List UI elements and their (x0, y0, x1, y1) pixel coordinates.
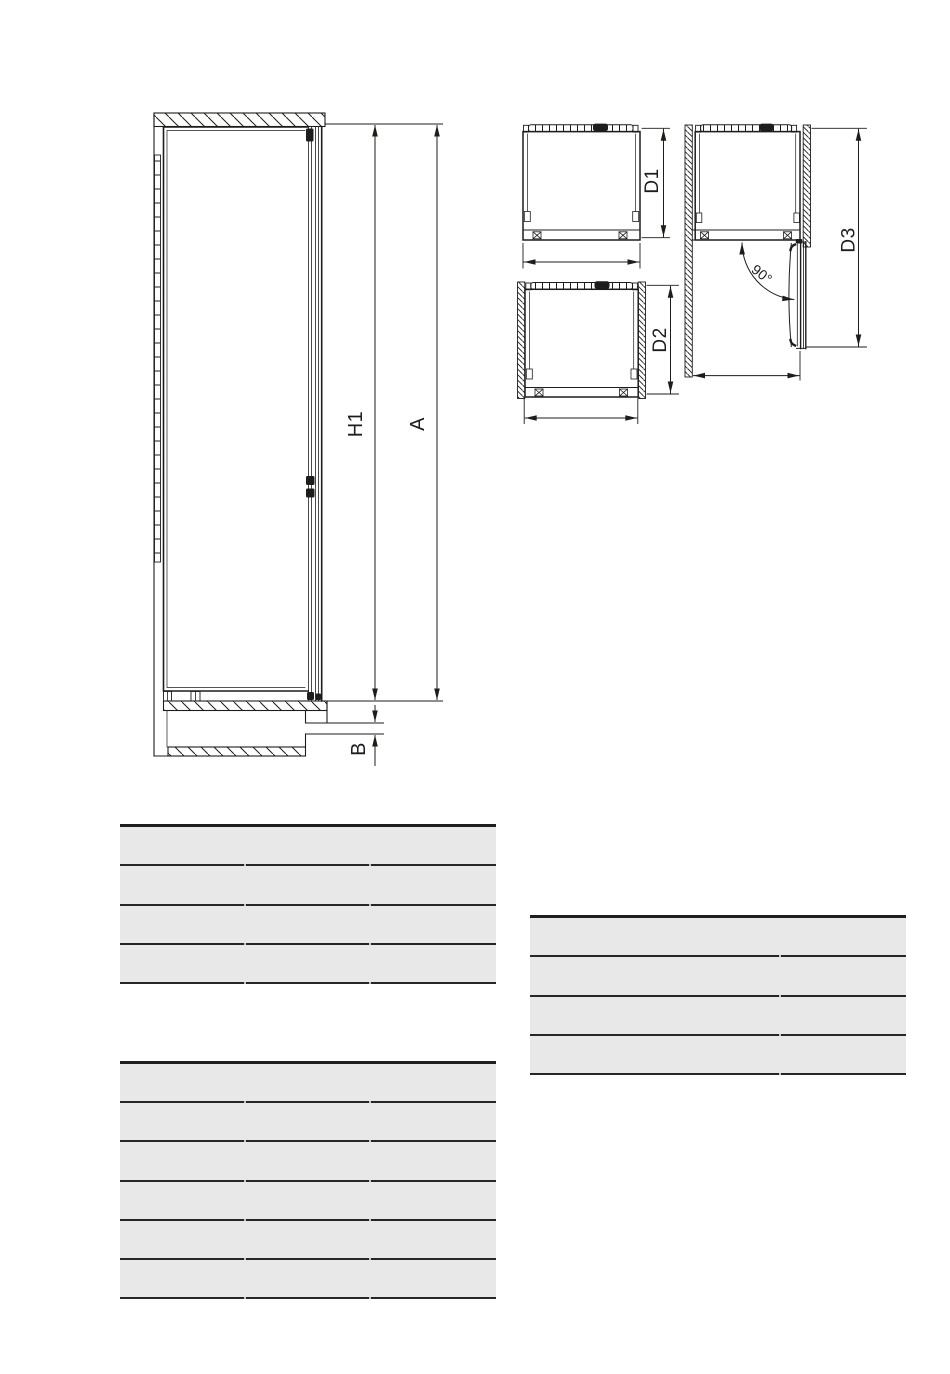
row-separator (530, 1034, 906, 1036)
plinth-board (168, 747, 306, 756)
mounting-strip (155, 155, 161, 562)
row-separator (120, 1140, 496, 1142)
dimensions-table-3 (120, 1061, 496, 1299)
appliance-outline (525, 289, 638, 397)
rollers (533, 232, 627, 239)
table-row (120, 1221, 496, 1258)
door-handle-block (593, 124, 608, 132)
dimensions-table-1 (120, 824, 496, 984)
table-row (530, 1036, 906, 1073)
table-row (120, 1260, 496, 1297)
door-swing-arc: 90° (742, 243, 794, 300)
dim-d2: D2 (647, 285, 679, 394)
appliance-door-section (309, 127, 319, 701)
table-row (120, 1142, 496, 1179)
table-row (530, 918, 906, 955)
dim-a: A (407, 125, 437, 700)
row-separator (120, 1101, 496, 1103)
row-separator (530, 1073, 906, 1075)
row-separator (120, 1297, 496, 1299)
row-separator (120, 1219, 496, 1221)
niche-wall-left (518, 282, 525, 399)
installation-drawing: H1 A B D1 (0, 0, 950, 790)
niche-wall-right (638, 282, 645, 399)
dimension-label-a: A (407, 417, 429, 431)
side-view (154, 113, 327, 756)
table-row (120, 1182, 496, 1219)
table-row (120, 1064, 496, 1101)
top-view-d2: D2 (518, 281, 679, 423)
dim-width-3 (694, 352, 801, 381)
row-separator (120, 982, 496, 984)
row-separator (530, 995, 906, 997)
table-row (120, 906, 496, 943)
dimension-label-d2: D2 (650, 327, 671, 352)
appliance-body-inner (167, 131, 305, 688)
dimension-label-b: B (348, 742, 370, 756)
niche-wall-left (685, 125, 692, 377)
door-angle-label: 90° (748, 261, 775, 287)
handle-block (760, 124, 774, 132)
niche-wall-right (803, 125, 810, 247)
dim-d1: D1 (642, 128, 670, 237)
table-row (120, 1103, 496, 1140)
row-separator (120, 1180, 496, 1182)
open-door (789, 239, 806, 349)
dim-width-2 (524, 399, 638, 424)
row-separator (120, 904, 496, 906)
door-hinge (796, 239, 803, 244)
table-row (530, 997, 906, 1034)
door-front-strip (529, 125, 634, 132)
dim-h1: H1 (325, 124, 443, 701)
appliance-outline (695, 132, 800, 240)
row-separator (120, 864, 496, 866)
appliance-body (164, 127, 309, 691)
table-row (120, 827, 496, 864)
row-separator (530, 955, 906, 957)
rollers (701, 232, 792, 239)
rollers (535, 389, 628, 396)
door-handle-block (595, 281, 610, 289)
table-row (530, 957, 906, 994)
appliance-outline (523, 132, 640, 240)
table-row (120, 945, 496, 982)
manual-page: H1 A B D1 (0, 0, 950, 1374)
dimension-label-h1: H1 (345, 411, 367, 438)
top-view-door-open: 90° D3 (685, 124, 867, 380)
row-separator (120, 943, 496, 945)
dimension-label-d1: D1 (642, 168, 663, 193)
dimension-label-d3: D3 (839, 227, 860, 252)
dimensions-table-2 (530, 915, 906, 1075)
appliance-feet (164, 692, 201, 702)
dim-width-1 (523, 244, 640, 269)
dim-b: B (306, 705, 385, 766)
back-strip (701, 125, 792, 132)
dim-d3: D3 (806, 128, 867, 347)
niche-floor-board (164, 701, 328, 711)
door-front-strip (531, 283, 633, 290)
table-row (120, 866, 496, 903)
top-view-d1: D1 (523, 124, 670, 268)
cabinet-top-panel (154, 113, 325, 127)
row-separator (120, 1258, 496, 1260)
